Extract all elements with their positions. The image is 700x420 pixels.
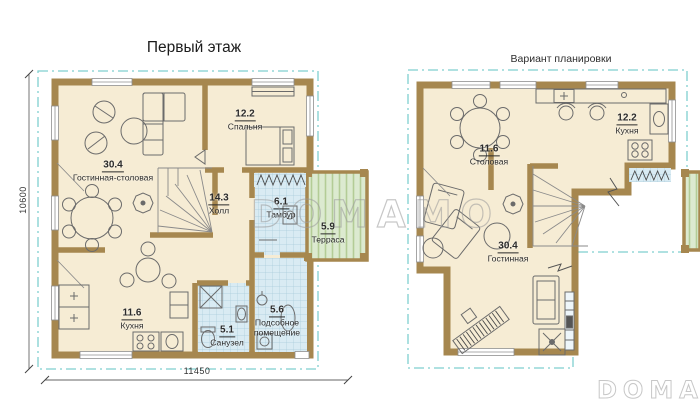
left-entry-steps: [254, 173, 306, 187]
room-area: 5.9: [320, 221, 336, 234]
room-area: 5.6: [269, 304, 285, 317]
room-name: Столовая: [470, 158, 508, 168]
room-name: Тамбур: [266, 211, 295, 221]
room-label-dining-variant: 11.6 Столовая: [470, 138, 508, 167]
room-area: 6.1: [273, 196, 289, 209]
room-name: Подсобное помещение: [246, 319, 308, 339]
room-area: 30.4: [497, 240, 518, 253]
left-terrace: [304, 169, 368, 261]
plan-title-variant: Вариант планировки: [511, 53, 612, 65]
room-name: Гостинная-столовая: [73, 174, 153, 184]
room-label-terrace: 5.9 Терраса: [312, 216, 345, 245]
room-name: Гостинная: [488, 255, 529, 265]
right-plan: [408, 70, 700, 368]
room-name: Спальня: [228, 123, 263, 133]
room-label-hall: 14.3 Холл: [208, 187, 229, 216]
plan-title-first-floor: Первый этаж: [147, 39, 241, 57]
floorplan-page: Первый этаж Вариант планировки 30.4 Гост…: [0, 0, 700, 420]
room-label-living-dining: 30.4 Гостинная-столовая: [73, 154, 153, 183]
room-label-kitchen-variant: 12.2 Кухня: [616, 107, 639, 136]
room-name: Терраса: [312, 236, 345, 246]
room-label-bathroom: 5.1 Санузел: [210, 319, 243, 348]
room-label-living-variant: 30.4 Гостинная: [488, 235, 529, 264]
room-area: 12.2: [234, 108, 255, 121]
room-area: 5.1: [219, 324, 235, 337]
room-area: 14.3: [208, 192, 229, 205]
room-area: 30.4: [102, 159, 123, 172]
dimension-width-label: 11450: [184, 366, 211, 376]
room-label-bedroom: 12.2 Спальня: [228, 103, 263, 132]
room-area: 11.6: [122, 307, 143, 320]
room-name: Кухня: [121, 322, 144, 332]
right-entry-steps: [629, 168, 671, 182]
dimension-height-label: 10600: [18, 186, 28, 214]
right-terrace: [681, 169, 700, 253]
right-shelf-icon: [565, 292, 574, 350]
room-area: 11.6: [479, 143, 500, 156]
room-label-kitchen: 11.6 Кухня: [121, 302, 144, 331]
room-name: Санузел: [210, 339, 243, 349]
room-name: Кухня: [616, 127, 639, 137]
room-label-vestibule: 6.1 Тамбур: [266, 191, 295, 220]
room-area: 12.2: [616, 112, 637, 125]
room-name: Холл: [208, 207, 229, 217]
room-label-utility: 5.6 Подсобное помещение: [246, 299, 308, 338]
